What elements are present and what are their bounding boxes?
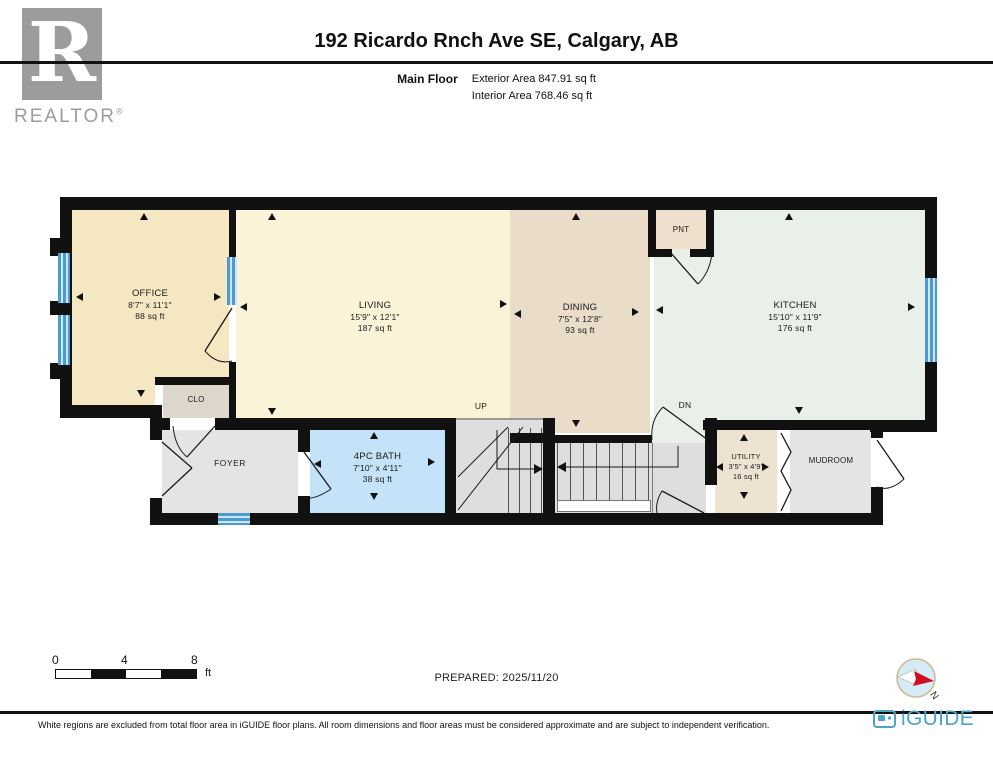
window-office-left-2 xyxy=(58,315,70,365)
office-dims: 8'7" x 11'1" xyxy=(95,300,205,311)
office-name: OFFICE xyxy=(95,288,205,300)
wall-foyer-bath-top xyxy=(215,418,456,430)
measure-arrow-kitchen-left-icon xyxy=(656,306,663,314)
iguide-wordmark: iGUIDE xyxy=(901,707,974,731)
room-foyer xyxy=(162,430,298,513)
living-dims: 15'9" x 12'1" xyxy=(315,312,435,323)
utility-area: 16 sq ft xyxy=(708,472,784,482)
area-summary: Exterior Area 847.91 sq ft Interior Area… xyxy=(472,71,596,105)
measure-arrow-bath-down-icon xyxy=(370,493,378,500)
dining-name: DINING xyxy=(525,302,635,314)
kitchen-dims: 15'10" x 11'9" xyxy=(730,312,860,323)
header-divider xyxy=(0,61,993,64)
bath-label: 4PC BATH 7'10" x 4'11" 38 sq ft xyxy=(315,451,440,485)
stairs-up-label: UP xyxy=(466,401,496,412)
stairs-dn-label: DN xyxy=(670,400,700,411)
floor-summary: Main Floor Exterior Area 847.91 sq ft In… xyxy=(0,71,993,105)
measure-arrow-dining-left-icon xyxy=(514,310,521,318)
wall-mudroom-right-bottom xyxy=(871,487,883,525)
dining-label: DINING 7'5" x 12'8" 93 sq ft xyxy=(525,302,635,336)
wall-left-stub-2 xyxy=(50,301,60,315)
living-label: LIVING 15'9" x 12'1" 187 sq ft xyxy=(315,300,435,334)
kitchen-area: 176 sq ft xyxy=(730,323,860,334)
wall-mudroom-right-top xyxy=(871,432,883,438)
floor-label: Main Floor xyxy=(397,72,458,105)
kitchen-label: KITCHEN 15'10" x 11'9" 176 sq ft xyxy=(730,300,860,334)
stairs-dn-treads xyxy=(557,443,652,500)
scale-tick-4: 4 xyxy=(121,653,128,667)
window-kitchen-right xyxy=(925,278,937,362)
realtor-logo: R REALTOR® xyxy=(14,8,125,128)
clo-name: CLO xyxy=(168,395,224,405)
wall-bath-left-bottom xyxy=(298,496,310,525)
wall-clo-top xyxy=(155,377,236,385)
office-label: OFFICE 8'7" x 11'1" 88 sq ft xyxy=(95,288,205,322)
measure-arrow-kitchen-right-icon xyxy=(908,303,915,311)
realtor-word-text: REALTOR xyxy=(14,106,116,127)
wall-foyer-left-top xyxy=(150,418,162,440)
registered-mark: ® xyxy=(116,107,125,117)
office-door-opening xyxy=(229,305,236,362)
floorplan-page: R REALTOR® 192 Ricardo Rnch Ave SE, Calg… xyxy=(0,0,993,768)
office-area: 88 sq ft xyxy=(95,311,205,322)
kitchen-name: KITCHEN xyxy=(730,300,860,312)
bath-name: 4PC BATH xyxy=(315,451,440,463)
iguide-icon xyxy=(872,707,898,731)
measure-arrow-bath-up-icon xyxy=(370,432,378,439)
wall-foyer-top-left xyxy=(162,418,170,430)
pnt-label: PNT xyxy=(658,225,704,235)
clo-label: CLO xyxy=(168,395,224,405)
wall-left xyxy=(60,210,72,418)
wall-bath-left-top xyxy=(298,418,310,452)
up-text: UP xyxy=(466,401,496,412)
mudroom-door xyxy=(877,440,904,479)
footer-divider xyxy=(0,711,993,714)
realtor-r-icon: R xyxy=(22,8,102,100)
measure-arrow-utility-down-icon xyxy=(740,492,748,499)
foyer-name: FOYER xyxy=(190,458,270,469)
mudroom-name: MUDROOM xyxy=(793,456,869,466)
iguide-logo: iGUIDE xyxy=(872,707,974,731)
stairs-dn-landing-strip xyxy=(557,500,651,512)
living-name: LIVING xyxy=(315,300,435,312)
scale-tick-8: 8 xyxy=(191,653,198,667)
compass-icon: N xyxy=(893,655,943,705)
measure-arrow-living-up-icon xyxy=(268,213,276,220)
wall-utility-top xyxy=(703,420,870,430)
page-title: 192 Ricardo Rnch Ave SE, Calgary, AB xyxy=(0,30,993,53)
dining-dims: 7'5" x 12'8" xyxy=(525,314,635,325)
wall-dn-top xyxy=(548,435,652,443)
exterior-area: Exterior Area 847.91 sq ft xyxy=(472,71,596,88)
foyer-label: FOYER xyxy=(190,458,270,469)
utility-dims: 3'5" x 4'9" xyxy=(708,462,784,472)
dining-area: 93 sq ft xyxy=(525,325,635,336)
measure-arrow-utility-up-icon xyxy=(740,434,748,441)
prepared-date: PREPARED: 2025/11/20 xyxy=(0,672,993,684)
measure-arrow-office-down-icon xyxy=(137,390,145,397)
wall-left-stub-3 xyxy=(50,363,60,379)
realtor-wordmark: REALTOR® xyxy=(14,106,125,128)
wall-office-bottom xyxy=(60,405,162,418)
footer-disclaimer: White regions are excluded from total fl… xyxy=(38,720,769,730)
window-office-left-1 xyxy=(58,253,70,303)
interior-area: Interior Area 768.46 sq ft xyxy=(472,88,596,105)
measure-arrow-living-right-icon xyxy=(500,300,507,308)
measure-arrow-office-up-icon xyxy=(140,213,148,220)
living-area: 187 sq ft xyxy=(315,323,435,334)
utility-name: UTILITY xyxy=(708,452,784,462)
room-kitchen-nook xyxy=(652,420,705,443)
bath-dims: 7'10" x 4'11" xyxy=(315,463,440,474)
wall-top xyxy=(60,197,937,210)
pnt-name: PNT xyxy=(658,225,704,235)
dn-text: DN xyxy=(670,400,700,411)
wall-pnt-bottom-left xyxy=(648,249,672,257)
wall-pnt-bottom-right xyxy=(690,249,714,257)
bath-area: 38 sq ft xyxy=(315,474,440,485)
wall-dining-bottom xyxy=(510,433,555,443)
wall-bottom xyxy=(150,513,883,525)
utility-label: UTILITY 3'5" x 4'9" 16 sq ft xyxy=(708,452,784,481)
window-office-living xyxy=(227,257,237,305)
wall-kitchen-bottom-right xyxy=(870,420,937,432)
measure-arrow-kitchen-up-icon xyxy=(785,213,793,220)
stairs-up-edge xyxy=(456,418,543,420)
measure-arrow-office-right-icon xyxy=(214,293,221,301)
room-mudroom xyxy=(790,430,871,513)
wall-office-living-upper xyxy=(229,210,236,257)
mudroom-label: MUDROOM xyxy=(793,456,869,466)
stairs-dn-landing xyxy=(652,443,706,513)
measure-arrow-dining-down-icon xyxy=(572,420,580,427)
measure-arrow-living-left-icon xyxy=(240,303,247,311)
window-foyer-bottom xyxy=(218,513,250,525)
wall-office-living-lower xyxy=(229,362,236,418)
measure-arrow-living-down-icon xyxy=(268,408,276,415)
scale-tick-0: 0 xyxy=(52,653,59,667)
measure-arrow-office-left-icon xyxy=(76,293,83,301)
measure-arrow-kitchen-down-icon xyxy=(795,407,803,414)
measure-arrow-dining-up-icon xyxy=(572,213,580,220)
wall-bath-right xyxy=(445,418,456,525)
